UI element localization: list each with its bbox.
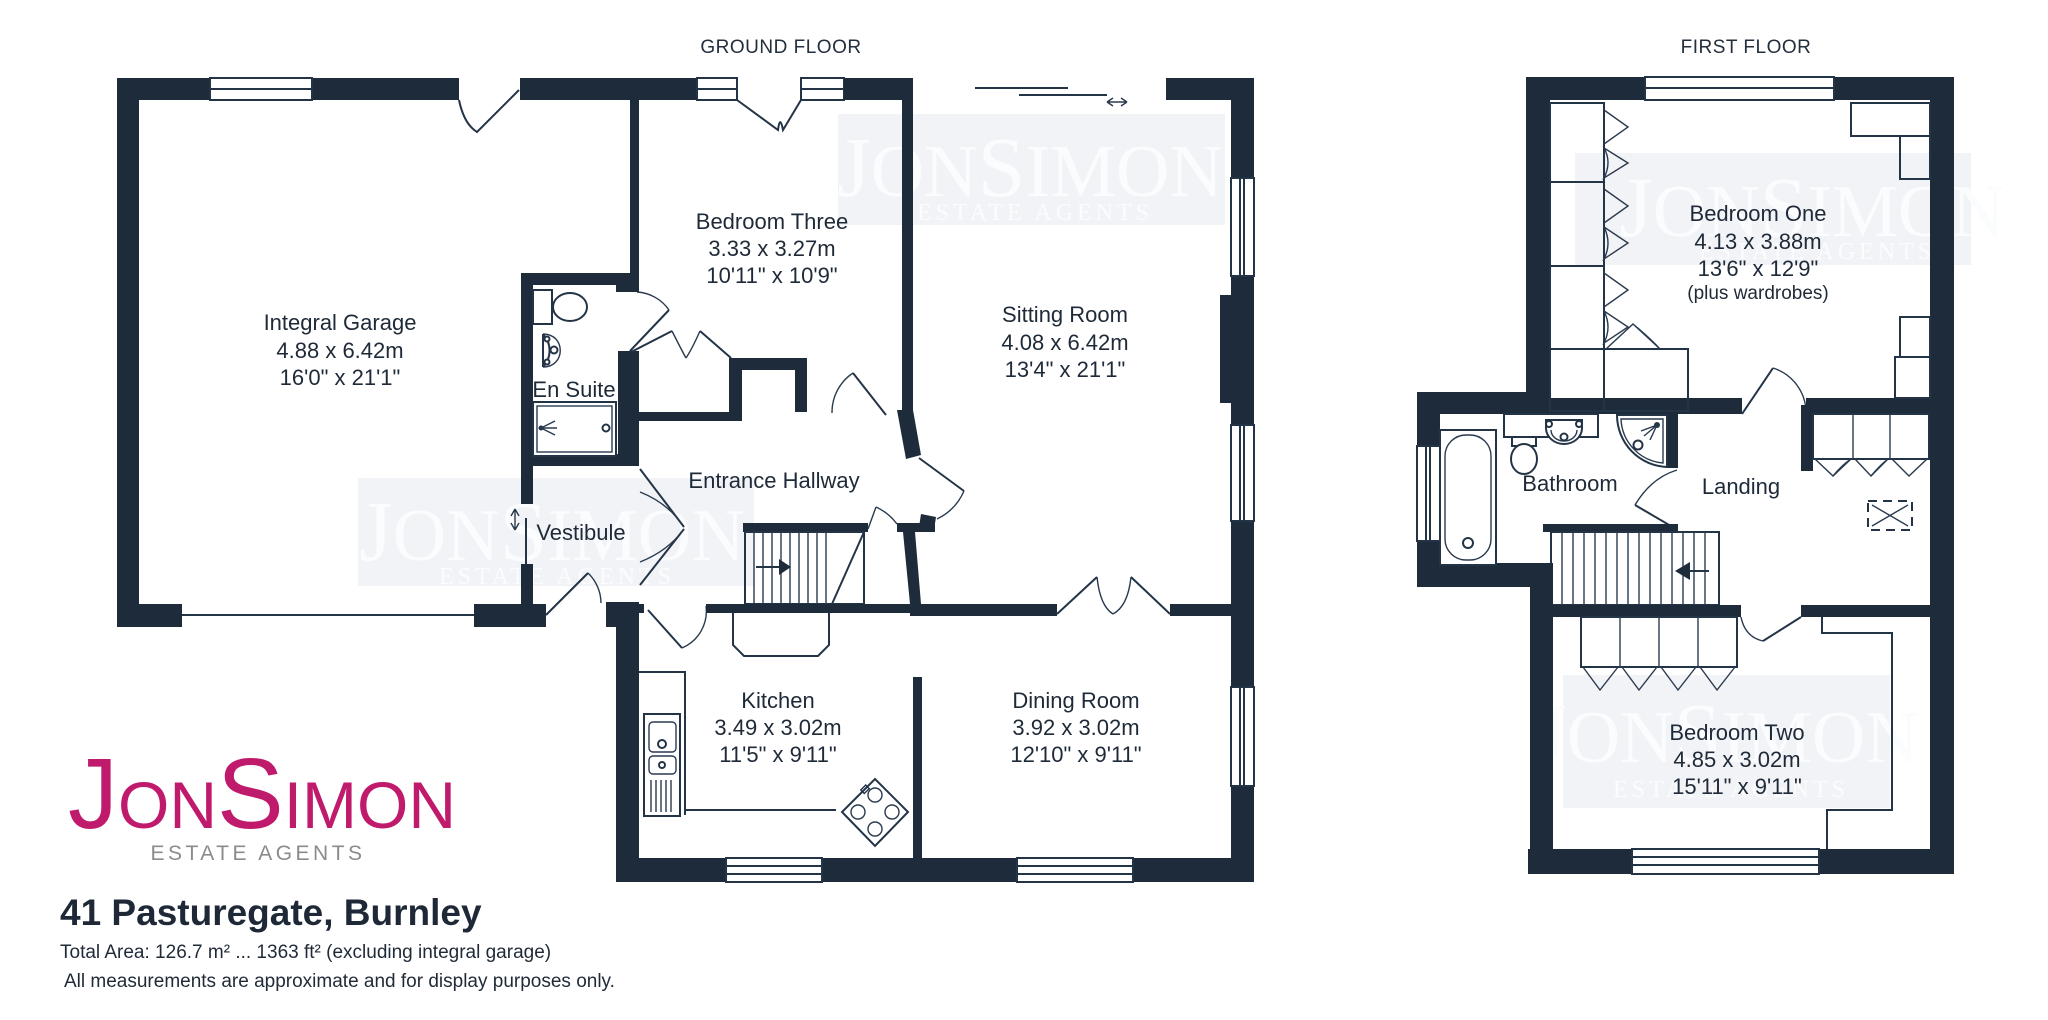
svg-text:12'10" x 9'11": 12'10" x 9'11" [1010,742,1141,767]
svg-text:Entrance Hallway: Entrance Hallway [688,468,859,493]
svg-text:Dining Room: Dining Room [1012,688,1139,713]
svg-text:10'11" x 10'9": 10'11" x 10'9" [706,263,837,288]
svg-text:13'4" x 21'1": 13'4" x 21'1" [1005,357,1126,382]
svg-text:Integral Garage: Integral Garage [264,310,417,335]
svg-text:FIRST FLOOR: FIRST FLOOR [1681,37,1812,58]
svg-text:Kitchen: Kitchen [741,688,814,713]
svg-text:GROUND FLOOR: GROUND FLOOR [700,37,861,58]
svg-text:En Suite: En Suite [532,377,615,402]
svg-text:Sitting Room: Sitting Room [1002,302,1128,327]
svg-text:All measurements are approxima: All measurements are approximate and for… [64,971,615,992]
svg-text:3.33 x 3.27m: 3.33 x 3.27m [708,236,835,261]
svg-text:4.13 x 3.88m: 4.13 x 3.88m [1694,229,1821,254]
svg-text:13'6" x 12'9": 13'6" x 12'9" [1698,256,1819,281]
svg-text:Bedroom One: Bedroom One [1690,201,1827,226]
svg-text:4.85 x 3.02m: 4.85 x 3.02m [1673,747,1800,772]
svg-text:4.88 x 6.42m: 4.88 x 6.42m [276,338,403,363]
svg-text:ESTATE AGENTS: ESTATE AGENTS [439,564,675,590]
svg-text:Bedroom Two: Bedroom Two [1669,720,1804,745]
svg-text:Vestibule: Vestibule [536,520,625,545]
svg-text:3.49 x 3.02m: 3.49 x 3.02m [714,715,841,740]
svg-text:Landing: Landing [1702,474,1780,499]
svg-text:Bathroom: Bathroom [1522,471,1617,496]
svg-text:Total Area: 126.7 m² ... 1363: Total Area: 126.7 m² ... 1363 ft² (exclu… [60,942,551,963]
svg-text:4.08 x 6.42m: 4.08 x 6.42m [1001,330,1128,355]
svg-text:3.92 x 3.02m: 3.92 x 3.02m [1012,715,1139,740]
svg-text:Bedroom Three: Bedroom Three [696,209,848,234]
svg-text:ESTATE AGENTS: ESTATE AGENTS [150,842,365,865]
svg-text:11'5" x 9'11": 11'5" x 9'11" [719,742,836,767]
svg-text:41 Pasturegate, Burnley: 41 Pasturegate, Burnley [60,892,482,933]
svg-text:(plus wardrobes): (plus wardrobes) [1687,283,1829,304]
svg-text:ESTATE AGENTS: ESTATE AGENTS [917,200,1153,226]
svg-text:16'0" x 21'1": 16'0" x 21'1" [280,365,401,390]
svg-text:15'11" x 9'11": 15'11" x 9'11" [1672,774,1802,799]
